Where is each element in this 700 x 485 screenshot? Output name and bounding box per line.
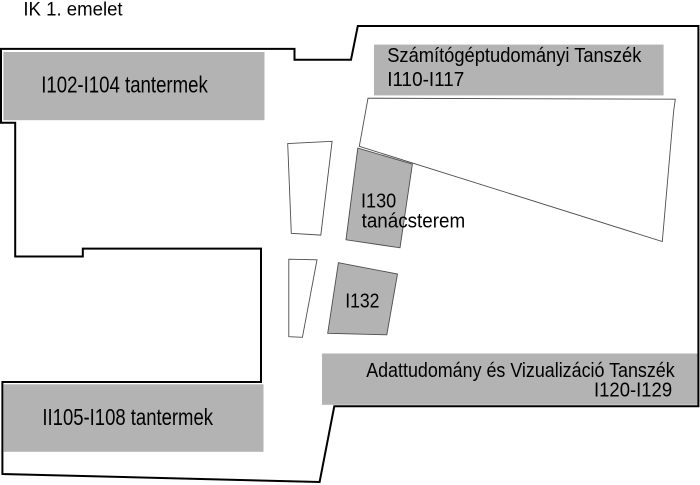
svg-text:I132: I132 [345,291,379,313]
svg-text:I102-I104 tantermek: I102-I104 tantermek [41,72,208,98]
svg-text:tanácsterem: tanácsterem [362,210,466,232]
svg-text:Számítógéptudományi Tanszék: Számítógéptudományi Tanszék [387,44,642,67]
svg-text:I120-I129: I120-I129 [594,378,672,401]
svg-text:I130: I130 [361,190,396,212]
svg-text:II105-I108 tantermek: II105-I108 tantermek [42,404,213,430]
svg-text:IK 1. emelet: IK 1. emelet [23,0,123,21]
svg-text:I110-I117: I110-I117 [387,68,464,91]
